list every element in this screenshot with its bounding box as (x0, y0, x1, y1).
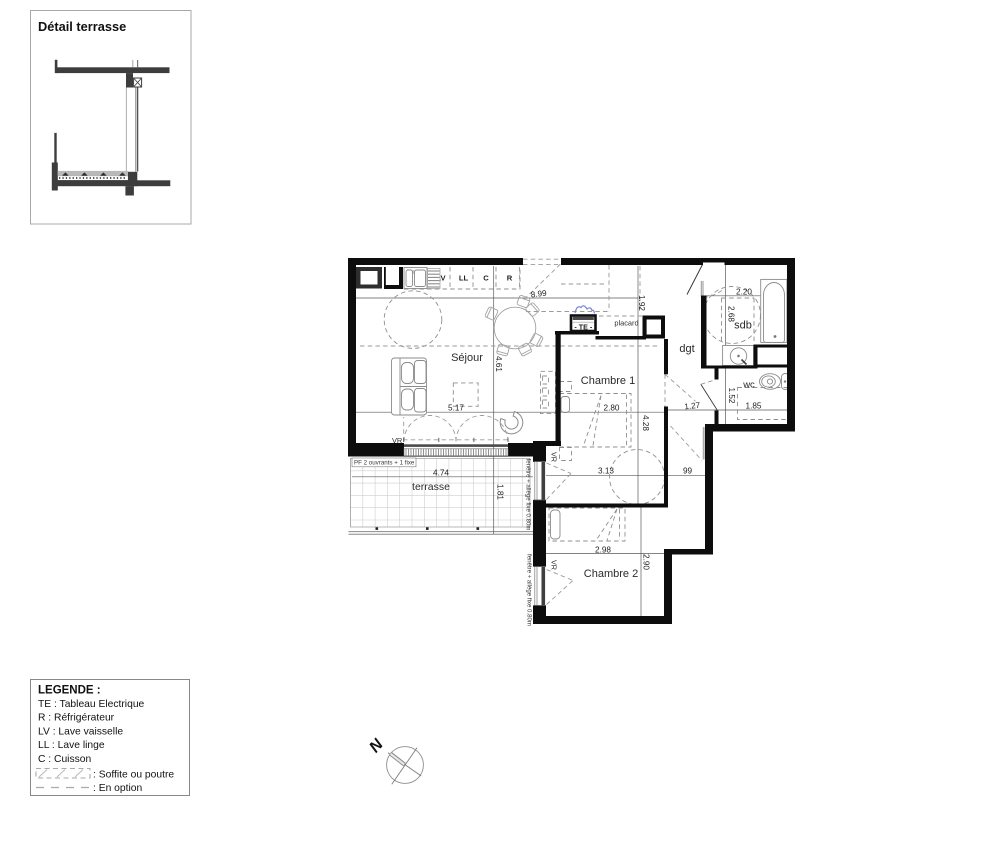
svg-text:- TE -: - TE - (574, 322, 593, 331)
svg-text:4.28: 4.28 (641, 415, 650, 431)
svg-text:dgt: dgt (679, 343, 694, 355)
svg-text:4.61: 4.61 (494, 356, 503, 372)
svg-text:2.98: 2.98 (595, 546, 611, 555)
svg-text:wc: wc (742, 380, 755, 391)
svg-text:fenêtre + allège fixe 0.80m: fenêtre + allège fixe 0.80m (526, 554, 533, 626)
svg-text:placard: placard (614, 319, 638, 328)
svg-text:fenêtre + allège fixe 0.80m: fenêtre + allège fixe 0.80m (525, 459, 532, 531)
svg-text:2.20: 2.20 (736, 287, 752, 296)
svg-text:LL : Lave linge: LL : Lave linge (38, 740, 105, 751)
svg-text:: Soffite ou poutre: : Soffite ou poutre (93, 770, 174, 781)
svg-text:Séjour: Séjour (451, 352, 483, 364)
svg-text:2.80: 2.80 (604, 404, 620, 413)
svg-text:R : Réfrigérateur: R : Réfrigérateur (38, 713, 115, 724)
svg-text:LV : Lave vaisselle: LV : Lave vaisselle (38, 726, 123, 737)
svg-text:sdb: sdb (734, 320, 752, 332)
svg-text:Chambre 2: Chambre 2 (584, 568, 638, 580)
svg-text:Chambre 1: Chambre 1 (581, 375, 635, 387)
svg-text:1.92: 1.92 (637, 295, 646, 311)
svg-text:3.13: 3.13 (598, 467, 614, 476)
svg-text:4.74: 4.74 (433, 468, 449, 477)
svg-text:C: C (483, 274, 489, 283)
svg-text:1.27: 1.27 (684, 401, 701, 412)
svg-text:99: 99 (683, 467, 693, 476)
svg-text:1.52: 1.52 (727, 388, 736, 404)
svg-text:R: R (507, 274, 513, 283)
svg-text:2.90: 2.90 (642, 554, 651, 570)
svg-text:terrasse: terrasse (412, 481, 450, 493)
svg-text:: En option: : En option (93, 783, 143, 794)
svg-text:2.68: 2.68 (727, 306, 736, 322)
svg-text:LEGENDE :: LEGENDE : (38, 685, 101, 697)
svg-text:Détail terrasse: Détail terrasse (38, 19, 126, 34)
svg-text:VR: VR (550, 452, 559, 462)
svg-text:VR: VR (550, 560, 559, 570)
svg-text:C : Cuisson: C : Cuisson (38, 754, 91, 765)
svg-text:LL: LL (459, 274, 469, 283)
svg-text:5.17: 5.17 (448, 404, 464, 413)
svg-text:1.81: 1.81 (496, 484, 505, 500)
svg-text:TE : Tableau Electrique: TE : Tableau Electrique (38, 699, 145, 710)
svg-text:1.85: 1.85 (746, 402, 762, 411)
svg-text:PF 2 ouvrants + 1 fixe: PF 2 ouvrants + 1 fixe (354, 460, 415, 467)
